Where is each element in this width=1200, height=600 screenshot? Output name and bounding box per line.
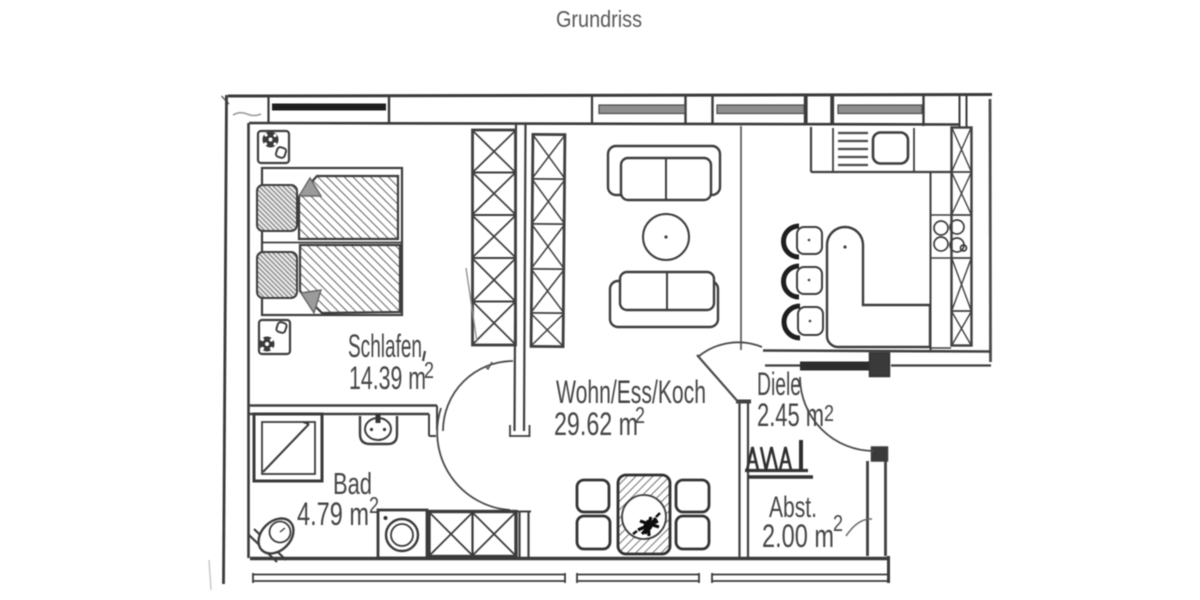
svg-text:2.00 m: 2.00 m bbox=[762, 518, 834, 554]
svg-text:Wohn/Ess/Koch: Wohn/Ess/Koch bbox=[556, 374, 706, 410]
svg-text:4.79 m: 4.79 m bbox=[297, 496, 369, 532]
svg-text:2: 2 bbox=[424, 357, 434, 383]
svg-text:2: 2 bbox=[824, 400, 834, 426]
svg-text:29.62 m: 29.62 m bbox=[554, 406, 638, 442]
svg-text:2: 2 bbox=[635, 402, 645, 428]
svg-text:Schlafen: Schlafen bbox=[348, 328, 422, 364]
svg-text:2: 2 bbox=[833, 510, 843, 536]
svg-text:2.45 m: 2.45 m bbox=[757, 397, 824, 433]
svg-text:14.39 m: 14.39 m bbox=[349, 360, 426, 396]
svg-text:Grundriss: Grundriss bbox=[556, 6, 642, 32]
